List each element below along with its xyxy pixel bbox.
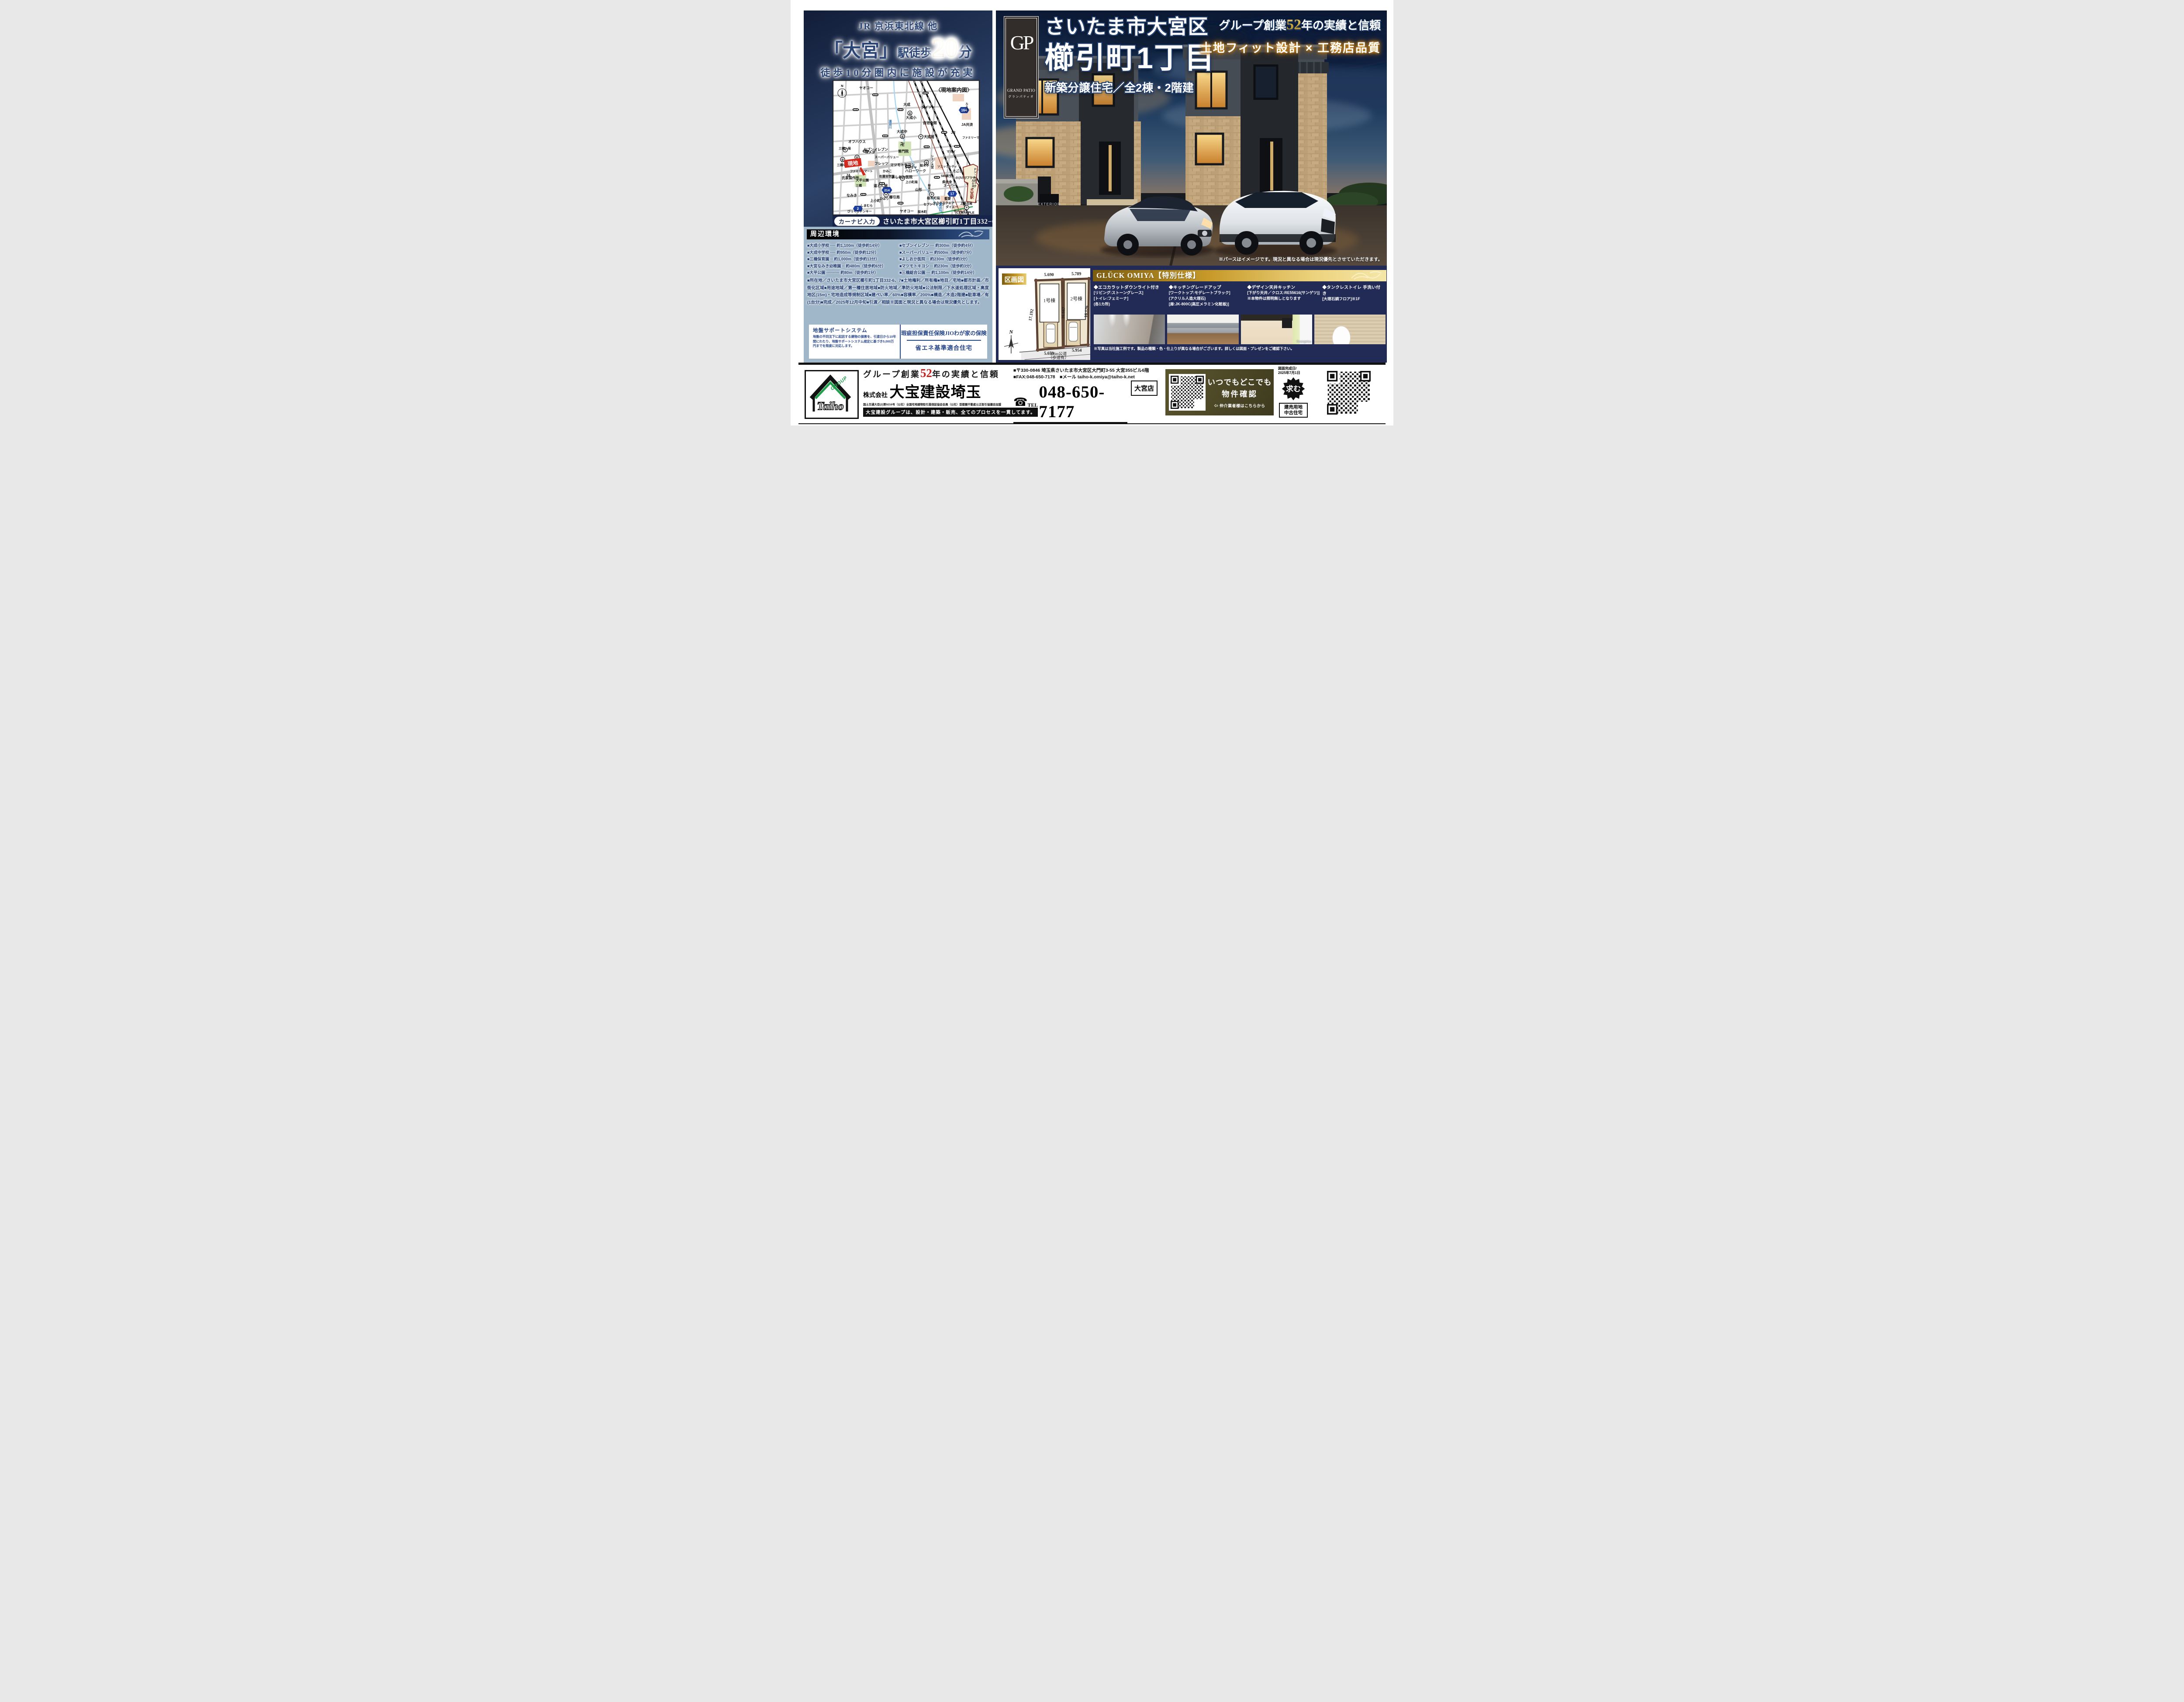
svg-text:山形: 山形 [915,187,922,192]
svg-text:2号棟: 2号棟 [1070,296,1082,302]
rail-line-label: JR 京浜東北線 他 [804,19,992,32]
drawing-date: 図面完成日/ 2025年7月1日 [1278,367,1300,375]
svg-text:16.667: 16.667 [1061,307,1066,319]
gp-logo-kana: グランパティオ [1004,94,1038,98]
property-details: ■所在地／さいたま市大宮区櫛引町1丁目332-6、7■土地権利／所有権■地目／宅… [807,277,989,306]
anniversary-pre: グループ創業 [1219,19,1286,32]
svg-text:道とん堀: 道とん堀 [874,183,888,188]
surroundings-title: 周辺環境 [810,231,840,238]
svg-text:大成: 大成 [903,102,910,107]
wanted-item-2: 中古住宅 [1280,410,1307,416]
spec-col-kitchen: ◆キッチングレードアップ [ワークトップ:モデレートブラック] (アクリル人造大… [1169,284,1248,307]
svg-text:（歩道有）: （歩道有） [1048,355,1069,360]
footer: GROUP Taiho グループ創業52年の実績と信頼 株式会社 大宝建設埼玉 … [798,363,1386,424]
fax-mail-line: ■FAX:048-650-7178 ■メール taiho-k.omiya@tai… [1013,374,1158,381]
taiho-logo: GROUP Taiho [805,370,859,419]
svg-text:ヤオコー: ヤオコー [859,86,873,90]
walk-minutes-unit: 分 [958,44,972,60]
ground-support-body: 地盤の不同沈下に起因する建物の損害を、引渡日から10年間にわたり、地盤サポートシ… [813,335,897,349]
svg-text:桜木町局: 桜木町局 [927,196,940,200]
station-walk-line: 「大宮」駅徒歩20分 [804,33,992,63]
company-name: 大宝建設埼玉 [889,384,981,401]
special-spec-header: GLÜCK OMIYA【特別仕様】 [1093,270,1386,281]
anniversary-number: 52 [1286,17,1301,33]
env-item: ■よしおか医院 ·· 約230m（徒歩約3分） [899,256,991,263]
svg-text:そごう: そごう [953,169,963,173]
contact-block: ■〒330-0846 埼玉県さいたま市大宮区大門町3-55 大宮355ビル6階 … [1013,367,1158,425]
banner-text: いつでもどこでも 物件確認 ⇦ 仲介業者様はこちらから [1206,377,1274,408]
svg-text:コメダ: コメダ [865,150,875,154]
svg-text:JR: JR [951,131,955,135]
env-item: ■セブンイレブン ··· 約300m（徒歩約4分） [899,242,991,249]
divider [907,340,981,341]
env-item: ■三橋保育園 ·· 約1,000m（徒歩約13分） [807,256,898,263]
gp-monogram: GP [1004,17,1038,69]
tagline-pre: グループ創業 [863,370,920,379]
spec-title: ◆キッチングレードアップ [1169,284,1245,290]
tagline-number: 52 [920,367,932,380]
spec-line: [下がり天井／クロス:RE55616(サンゲツ)] [1247,290,1320,296]
svg-text:フレッツ: フレッツ [874,162,888,166]
flourish-ornament [1349,270,1384,281]
surroundings-section: 周辺環境 ■大成小学校 ···· 約1,100m（徒歩約14分） ■セブンイレブ… [804,227,992,363]
render-disclaimer: ※パースはイメージです。現況と異なる場合は現況優先とさせていただきます。 [1219,256,1382,263]
design-ceiling-photo: ©sangetsu [1241,315,1312,344]
property-qr-code [1327,371,1371,415]
company-block: グループ創業52年の実績と信頼 株式会社 大宝建設埼玉 国土交通大臣(2)第92… [863,367,1007,417]
svg-text:大成中: 大成中 [897,129,907,134]
svg-text:ファミリーマート: ファミリーマート [962,136,979,139]
car-navi-address: さいたま市大宮区櫛引町1丁目332−6 [883,216,995,226]
wanted-items: 建売用地 中古住宅 [1279,403,1308,418]
branch-badge: 大宮店 [1131,381,1158,396]
ecocarat-photo [1094,315,1165,344]
quality-copy: 土地フィット設計 × 工務店品質 [1200,38,1381,55]
spec-line: [トイレ:フェミーナ] [1094,296,1166,301]
spec-line: (アクリル人造大理石) [1169,296,1245,301]
spec-line: ※本物件は照明無しとなります [1247,296,1320,301]
photo-credit: ©sangetsu [1296,340,1311,343]
svg-text:214: 214 [884,188,890,192]
tel-row: ☎ TEL 048-650-7177 [1013,382,1127,423]
svg-text:〒: 〒 [919,136,922,139]
special-spec-title: GLÜCK OMIYA【特別仕様】 [1096,271,1200,280]
license-line: 国土交通大臣(2)第9216号（公社）全国宅地建物取引業保証協会会員（公社）首都… [863,402,1007,406]
kitchen-photo [1167,315,1238,344]
phone-icon: ☎ [1013,396,1027,408]
svg-text:5.789: 5.789 [1071,272,1081,277]
svg-text:自治会館: 自治会館 [923,121,937,125]
spec-col-ceiling: ◆デザイン天井キッチン [下がり天井／クロス:RE55616(サンゲツ)] ※本… [1247,284,1322,307]
company-name-row: 株式会社 大宝建設埼玉 [863,380,1007,401]
environment-list: ■大成小学校 ···· 約1,100m（徒歩約14分） ■セブンイレブン ···… [807,242,991,276]
company-prefix: 株式会社 [863,392,888,399]
flourish-ornament [957,230,988,239]
spec-columns: ◆エコカラットダウンライト付き [リビング:ストーングレース] [トイレ:フェミ… [1094,284,1386,307]
svg-text:ダイソー: ダイソー [921,105,935,109]
svg-text:県信金: 県信金 [942,180,952,184]
left-header-panel: JR 京浜東北線 他 「大宮」駅徒歩20分 徒歩10分圏内に施設が充実 [804,10,992,227]
svg-text:普門院: 普門院 [898,149,909,153]
title-town: 櫛引町1丁目 [1045,39,1215,77]
svg-text:マルイ: マルイ [947,150,956,153]
grand-patio-logo: GP GRAND PATIO グランパティオ [1004,16,1039,118]
spec-line: (各1カ所) [1094,301,1166,307]
svg-text:1号棟: 1号棟 [1044,298,1055,304]
ground-support-title: 地盤サポートシステム [813,327,897,334]
anniversary-copy: グループ創業52年の実績と信頼 [1200,17,1381,33]
spec-title: ◆デザイン天井キッチン [1247,284,1320,290]
hero-render: EXTERIOR [996,10,1387,266]
site-plan-box: 5.690 5.789 17.192 16.667 16.126 5.659 5… [999,268,1090,360]
spec-photo-strip: ©sangetsu [1094,315,1386,344]
site-plan-svg: 5.690 5.789 17.192 16.667 16.126 5.659 5… [999,268,1090,360]
svg-text:ヤオコー: ヤオコー [900,209,914,213]
spec-line: [扉:JK-800C(高圧メラミン化粧板)] [1169,301,1245,307]
gp-logo-name: GRAND PATIO [1004,88,1038,93]
wanted-burst: 求む [1279,375,1308,402]
map-credit: (C) MAPPLE [955,211,975,214]
car-navi-label: カーナビ入力 [834,217,880,226]
special-spec-section: GLÜCK OMIYA【特別仕様】 ◆エコカラットダウンライト付き [リビング:… [1093,266,1387,363]
spec-line: [リビング:ストーングレース] [1094,290,1166,296]
env-item: ■大成小学校 ···· 約1,100m（徒歩約14分） [807,242,898,249]
wanted-badge: 求む 建売用地 中古住宅 [1279,375,1308,418]
energy-title: 省エネ基準適合住宅 [901,343,987,352]
bottom-right-panel: 5.690 5.789 17.192 16.667 16.126 5.659 5… [996,266,1387,363]
temple-icon: 卍 [900,142,905,147]
route-badge-214: 214 [882,187,892,193]
svg-text:オフハウス: オフハウス [848,140,866,144]
title-city: さいたま市大宮区 [1045,14,1215,39]
warranty-box: 地盤サポートシステム 地盤の不同沈下に起因する建物の損害を、引渡日から10年間に… [809,325,987,359]
taiho-logo-svg: GROUP Taiho [806,371,855,415]
flyer-page: JR 京浜東北線 他 「大宮」駅徒歩20分 徒歩10分圏内に施設が充実 [791,0,1393,425]
svg-text:よしおか医院: よしおか医院 [892,175,912,179]
svg-text:大平公園: 大平公園 [856,178,869,182]
road-labels: 9.8m公道 （歩道有） [1048,351,1069,360]
property-check-banner: いつでもどこでも 物件確認 ⇦ 仲介業者様はこちらから [1165,369,1274,415]
lot-1 [1036,280,1063,350]
surroundings-header: 周辺環境 [807,229,989,239]
svg-text:〒: 〒 [965,207,968,210]
svg-text:17: 17 [950,192,954,196]
property-title: さいたま市大宮区 櫛引町1丁目 新築分譲住宅／全2棟・2階建 [1045,14,1215,95]
qr-code-svg [1327,371,1371,415]
agent-qr-code [1169,374,1206,411]
route-badge-17: 17 [947,191,957,197]
address-line: ■〒330-0846 埼玉県さいたま市大宮区大門町3-55 大宮355ビル6階 [1013,367,1158,374]
banner-sub: ⇦ 仲介業者様はこちらから [1206,403,1274,408]
banner-line2: 物件確認 [1206,388,1274,399]
svg-text:大宮駅: 大宮駅 [970,187,974,199]
facility-subheadline: 徒歩10分圏内に施設が充実 [804,65,992,79]
area-map: 164 2 214 17 [833,80,980,215]
env-item: ■スーパーバリュー 約500m（徒歩約7分） [899,249,991,256]
insurance-cell: 瑕疵担保責任保険JIOわが家の保険 省エネ基準適合住宅 [901,325,987,359]
svg-text:聖愛: 聖愛 [944,196,951,201]
toilet-photo [1314,315,1386,344]
svg-text:櫛引局: 櫛引局 [889,195,900,199]
tagline-post: 年の実績と信頼 [932,370,999,379]
car-navi-bar: カーナビ入力 さいたま市大宮区櫛引町1丁目332−6 [833,215,992,227]
spec-title: ◆エコカラットダウンライト付き [1094,284,1166,290]
env-item: ■三橋総合公園 ··· 約1,100m（徒歩約14分） [899,270,991,276]
tel-number[interactable]: 048-650-7177 [1039,382,1127,422]
svg-text:N: N [841,84,843,88]
plan-tag: 区画図 [1004,276,1024,284]
taiho-name-label: Taiho [817,400,843,412]
spec-line: [大理石調フロア]※1F [1322,296,1383,302]
env-item: ■大平公園 ·········· 約80m（徒歩約1分） [807,270,898,276]
tel-label: TEL [1027,402,1038,408]
spec-title: ◆タンクレストイレ 手洗い付き [1322,284,1383,296]
qr-code-svg [1171,376,1204,409]
svg-text:鴻沼川: 鴻沼川 [888,119,892,129]
hero-right-copy: グループ創業52年の実績と信頼 土地フィット設計 × 工務店品質 [1200,17,1381,55]
svg-text:大成小: 大成小 [906,115,916,120]
svg-text:5.954: 5.954 [1072,348,1082,353]
company-tagline: グループ創業52年の実績と信頼 [863,367,1007,380]
insurance-title: 瑕疵担保責任保険JIOわが家の保険 [901,329,987,337]
walk-minutes: 20 [932,34,958,62]
ground-support-cell: 地盤サポートシステム 地盤の不同沈下に起因する建物の損害を、引渡日から10年間に… [809,325,901,359]
svg-text:なみき: なみき [847,194,857,197]
walk-suffix: 駅徒歩 [898,47,932,59]
spec-line: [ワークトップ:モデレートブラック] [1169,290,1245,296]
svg-text:上小町: 上小町 [870,198,881,203]
env-item: ■大成中学校 ···· 約950m（徒歩約12分） [807,249,898,256]
svg-text:鴻沼川: 鴻沼川 [939,202,943,212]
wanted-label: 求む [1286,384,1301,393]
spec-col-ecocarat: ◆エコカラットダウンライト付き [リビング:ストーングレース] [トイレ:フェミ… [1094,284,1169,307]
group-slogan: 大宝建設グループは、設計・建築・販売、全てのプロセスを一貫してます。 [863,408,1038,417]
spec-col-toilet: ◆タンクレストイレ 手洗い付き [大理石調フロア]※1F [1322,284,1386,307]
drawing-date-label: 図面完成日/ [1278,367,1300,371]
spec-note: ※写真は当社施工例です。製品の種類・色・仕上りが異なる場合がございます。詳しくは… [1094,346,1294,351]
title-type: 新築分譲住宅／全2棟・2階建 [1045,80,1215,95]
banner-line1: いつでもどこでも [1206,377,1274,387]
svg-text:N: N [1009,329,1013,335]
svg-text:大成局: 大成局 [924,135,934,139]
wanted-item-1: 建売用地 [1280,405,1307,410]
svg-text:かみこ: かみこ [883,170,892,173]
station-name: 「大宮」 [824,41,898,61]
drawing-date-value: 2025年7月1日 [1278,371,1300,375]
svg-text:〒: 〒 [885,194,887,197]
env-item: ■大宮なみき幼稚園 ·· 約480m（徒歩約6分） [807,263,898,270]
station-headline: JR 京浜東北線 他 「大宮」駅徒歩20分 徒歩10分圏内に施設が充実 [804,19,992,79]
map-svg: 164 2 214 17 [833,80,979,215]
svg-text:〈現地案内図〉: 〈現地案内図〉 [936,86,972,93]
svg-text:JA: JA [846,173,850,177]
anniversary-post: 年の実績と信頼 [1301,19,1381,32]
env-item: ■マツモトキヨシ ·· 約230m（徒歩約3分） [899,263,991,270]
svg-text:5.690: 5.690 [1044,273,1054,277]
svg-text:JA共済: JA共済 [961,122,973,127]
